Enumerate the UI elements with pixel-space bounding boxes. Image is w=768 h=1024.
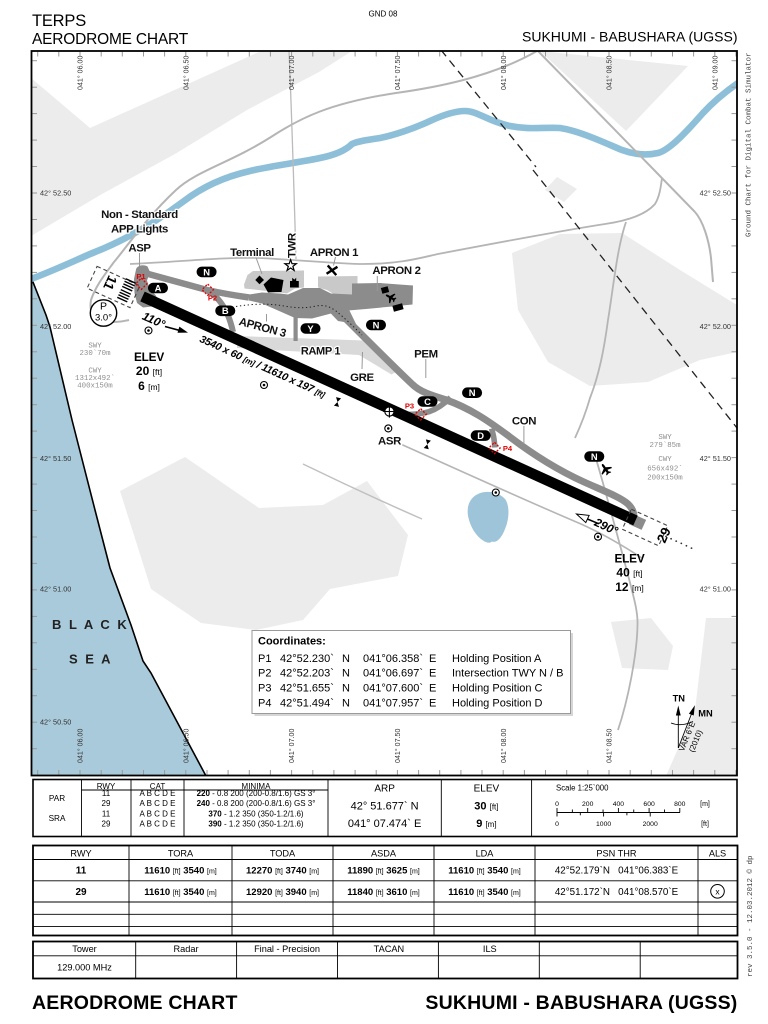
svg-text:1000: 1000 [596,821,611,828]
svg-text:42°52.230`: 42°52.230` [280,653,334,665]
svg-text:E: E [429,683,436,695]
svg-text:370 - 1.2 350 (350-1.2/1.6): 370 - 1.2 350 (350-1.2/1.6) [208,809,304,818]
svg-text:041° 06.00: 041° 06.00 [77,729,85,763]
svg-text:041° 08.00: 041° 08.00 [500,729,508,763]
svg-text:42°51.172`N 041°08.570`E: 42°51.172`N 041°08.570`E [555,887,679,898]
svg-text:P3: P3 [405,402,414,411]
svg-text:041°06.697`: 041°06.697` [363,668,423,680]
svg-text:041° 08.50: 041° 08.50 [606,729,614,763]
svg-text:MN: MN [698,709,713,719]
svg-text:E: E [429,653,436,665]
svg-text:ELEV: ELEV [614,552,644,566]
svg-text:42° 51.00: 42° 51.00 [40,585,71,594]
svg-text:TERPS: TERPS [32,12,86,30]
svg-text:041°07.957`: 041°07.957` [363,698,423,710]
svg-text:40 [ft]: 40 [ft] [616,565,642,579]
svg-text:ASDA: ASDA [371,848,397,858]
svg-text:041°07.600`: 041°07.600` [363,683,423,695]
svg-text:N: N [203,266,210,277]
svg-text:ASP: ASP [128,243,151,255]
svg-text:N: N [469,387,476,398]
svg-text:P2: P2 [258,668,271,680]
svg-text:29: 29 [102,820,111,829]
svg-text:APP Lights: APP Lights [111,224,168,236]
svg-text:279`85m: 279`85m [649,442,681,450]
svg-text:42° 52.50: 42° 52.50 [700,189,731,198]
svg-text:N: N [342,653,350,665]
svg-text:400: 400 [613,801,625,808]
svg-text:A: A [155,282,162,293]
svg-text:D: D [477,430,484,441]
svg-text:42°52.179`N 041°06.383`E: 42°52.179`N 041°06.383`E [555,866,679,877]
svg-text:11610 [ft] 3540 [m]: 11610 [ft] 3540 [m] [448,887,521,898]
svg-text:N: N [342,698,350,710]
svg-text:SUKHUMI - BABUSHARA (UGSS): SUKHUMI - BABUSHARA (UGSS) [425,992,737,1014]
svg-text:12 [m]: 12 [m] [615,580,644,594]
svg-text:Intersection TWY N / B: Intersection TWY N / B [452,668,563,680]
svg-text:11: 11 [76,866,87,877]
svg-text:AERODROME CHART: AERODROME CHART [32,992,238,1014]
svg-text:S E A: S E A [69,652,112,667]
svg-text:ELEV: ELEV [474,784,500,795]
svg-text:[m]: [m] [700,801,710,808]
svg-text:0: 0 [555,821,559,828]
svg-text:11840 [ft] 3610 [m]: 11840 [ft] 3610 [m] [347,887,420,898]
svg-text:N: N [591,451,598,462]
svg-text:Radar: Radar [173,944,198,954]
svg-text:129.000 MHz: 129.000 MHz [57,963,112,973]
svg-text:rev 3.5.0 - 12.03.2012 © dp: rev 3.5.0 - 12.03.2012 © dp [746,855,755,977]
svg-text:RAMP 1: RAMP 1 [301,346,340,358]
svg-text:TWR: TWR [287,233,299,258]
svg-text:42°51.655`: 42°51.655` [280,683,334,695]
svg-text:Terminal: Terminal [230,247,274,259]
svg-text:Non - Standard: Non - Standard [101,209,178,221]
svg-text:ILS: ILS [483,944,497,954]
svg-text:42° 51.50: 42° 51.50 [700,454,731,463]
svg-text:42° 52.50: 42° 52.50 [40,189,71,198]
svg-text:P3: P3 [258,683,271,695]
svg-text:29: 29 [75,887,87,898]
svg-text:2000: 2000 [643,821,658,828]
svg-text:B L A C K: B L A C K [52,617,129,632]
svg-text:A B C D E: A B C D E [139,809,175,818]
svg-text:20 [ft]: 20 [ft] [136,364,162,378]
svg-text:11: 11 [102,789,111,798]
svg-text:220 - 0.8 200 (200-0.8/1.6) GS: 220 - 0.8 200 (200-0.8/1.6) GS 3° [197,789,316,798]
svg-text:11: 11 [102,809,111,818]
svg-text:656x492`: 656x492` [647,466,682,474]
svg-text:ELEV: ELEV [134,350,164,364]
svg-text:Ground Chart for Digital Comba: Ground Chart for Digital Combat Simulato… [746,52,754,237]
svg-text:ALS: ALS [709,848,726,858]
svg-text:TORA: TORA [168,848,194,858]
svg-text:Holding Position C: Holding Position C [452,683,543,695]
svg-text:SRA: SRA [49,814,66,823]
svg-text:A B C D E: A B C D E [139,789,175,798]
svg-text:Final - Precision: Final - Precision [254,944,320,954]
svg-text:041° 07.474` E: 041° 07.474` E [348,818,422,830]
svg-text:42° 50.50: 42° 50.50 [40,718,71,727]
svg-text:11610 [ft] 3540 [m]: 11610 [ft] 3540 [m] [144,887,217,898]
svg-text:ARP: ARP [374,784,395,795]
svg-text:GRE: GRE [350,372,374,384]
svg-text:42°52.203`: 42°52.203` [280,668,334,680]
svg-text:240 - 0.8 200 (200-0.8/1.6) GS: 240 - 0.8 200 (200-0.8/1.6) GS 3° [197,799,316,808]
svg-text:APRON 2: APRON 2 [372,265,420,277]
svg-text:42° 51.677` N: 42° 51.677` N [351,801,419,813]
svg-text:APRON 1: APRON 1 [310,247,359,259]
svg-text:TACAN: TACAN [374,944,404,954]
svg-text:12270 [ft] 3740 [m]: 12270 [ft] 3740 [m] [246,866,319,877]
svg-text:RWY: RWY [70,848,91,858]
svg-text:P2: P2 [208,294,217,303]
svg-text:041° 09.00: 041° 09.00 [711,56,719,90]
svg-text:P1: P1 [136,272,146,281]
svg-text:C: C [424,396,431,407]
svg-text:041° 07.50: 041° 07.50 [394,56,402,90]
svg-text:9 [m]: 9 [m] [476,818,496,830]
svg-text:P4: P4 [258,698,271,710]
svg-text:E: E [429,668,436,680]
svg-text:N: N [342,683,350,695]
svg-text:GND 08: GND 08 [369,10,398,19]
svg-text:A B C D E: A B C D E [139,820,175,829]
svg-text:PEM: PEM [414,349,438,361]
svg-text:SUKHUMI - BABUSHARA (UGSS): SUKHUMI - BABUSHARA (UGSS) [522,29,737,45]
svg-text:42°51.494`: 42°51.494` [280,698,334,710]
svg-text:0: 0 [555,801,559,808]
svg-text:42° 52.00: 42° 52.00 [700,322,731,331]
svg-text:Scale 1:25`000: Scale 1:25`000 [556,784,609,793]
svg-text:200: 200 [582,801,594,808]
svg-text:Tower: Tower [72,944,97,954]
svg-text:11610 [ft] 3540 [m]: 11610 [ft] 3540 [m] [144,866,217,877]
svg-text:041° 06.00: 041° 06.00 [77,56,85,90]
svg-text:E: E [429,698,436,710]
svg-text:041° 06.50: 041° 06.50 [182,56,190,90]
svg-text:041° 08.50: 041° 08.50 [606,56,614,90]
svg-text:CWY: CWY [658,456,672,464]
svg-text:041° 07.50: 041° 07.50 [394,729,402,763]
svg-text:Coordinates:: Coordinates: [258,636,326,648]
svg-text:6 [m]: 6 [m] [138,379,160,393]
svg-text:11610 [ft] 3540 [m]: 11610 [ft] 3540 [m] [448,866,521,877]
svg-text:400x150m: 400x150m [77,383,113,391]
svg-text:N: N [342,668,350,680]
svg-text:CON: CON [512,416,536,428]
svg-text:390 - 1.2 350 (350-1.2/1.6): 390 - 1.2 350 (350-1.2/1.6) [208,820,304,829]
svg-text:11890 [ft] 3625 [m]: 11890 [ft] 3625 [m] [347,866,420,877]
svg-text:600: 600 [643,801,655,808]
svg-text:041° 07.00: 041° 07.00 [288,56,296,90]
svg-text:42° 51.00: 42° 51.00 [700,585,731,594]
svg-text:200x150m: 200x150m [647,475,683,483]
svg-text:P4: P4 [503,444,513,453]
svg-text:041° 07.00: 041° 07.00 [288,729,296,763]
svg-text:PSN THR: PSN THR [596,848,637,858]
svg-text:42° 51.50: 42° 51.50 [40,454,71,463]
svg-text:29: 29 [102,799,111,808]
svg-text:800: 800 [674,801,686,808]
svg-text:041°06.358`: 041°06.358` [363,653,423,665]
svg-text:P: P [100,301,107,313]
svg-text:SWY: SWY [658,434,672,442]
svg-text:Holding Position A: Holding Position A [452,653,542,665]
svg-text:LDA: LDA [476,848,495,858]
svg-text:30 [ft]: 30 [ft] [474,801,498,813]
svg-text:[ft]: [ft] [701,821,709,828]
svg-text:041° 08.00: 041° 08.00 [500,56,508,90]
svg-text:P1: P1 [258,653,271,665]
svg-text:42° 52.00: 42° 52.00 [40,322,71,331]
svg-text:PAR: PAR [49,794,65,803]
svg-text:12920 [ft] 3940 [m]: 12920 [ft] 3940 [m] [246,887,319,898]
svg-text:B: B [222,305,229,316]
svg-text:230`70m: 230`70m [79,350,111,358]
svg-text:TN: TN [673,694,686,704]
svg-text:AERODROME CHART: AERODROME CHART [32,31,189,48]
svg-text:A B C D E: A B C D E [139,799,175,808]
svg-text:TODA: TODA [270,848,296,858]
svg-text:041° 06.50: 041° 06.50 [182,729,190,763]
svg-text:N: N [373,319,380,330]
svg-text:3.0°: 3.0° [95,313,112,324]
svg-text:Y: Y [307,323,314,334]
svg-text:ASR: ASR [378,436,401,448]
svg-text:Holding Position D: Holding Position D [452,698,543,710]
